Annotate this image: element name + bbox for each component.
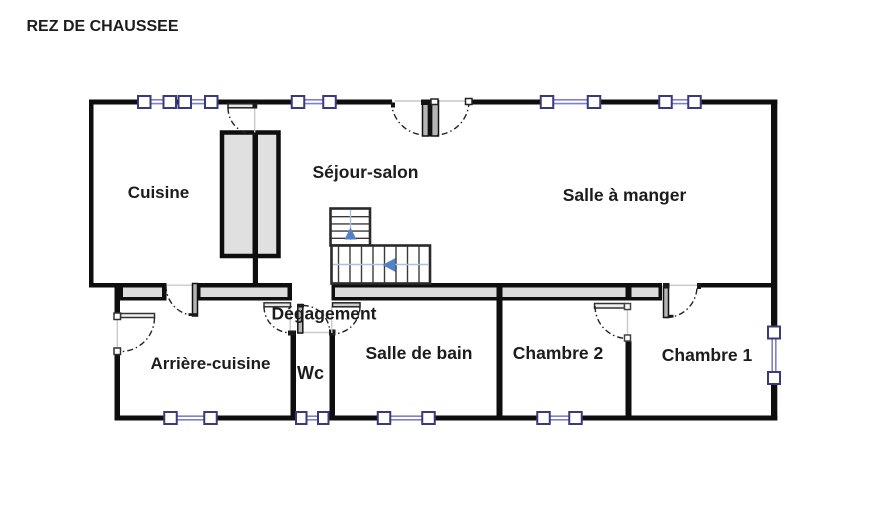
svg-text:Arrière-cuisine: Arrière-cuisine	[151, 354, 271, 373]
svg-text:Wc: Wc	[297, 363, 324, 383]
svg-text:Chambre 2: Chambre 2	[513, 343, 604, 363]
svg-text:Dégagement: Dégagement	[271, 304, 376, 324]
svg-text:REZ DE CHAUSSEE: REZ DE CHAUSSEE	[27, 18, 179, 35]
svg-text:Séjour-salon: Séjour-salon	[313, 162, 419, 182]
svg-text:Cuisine: Cuisine	[128, 183, 189, 202]
svg-text:Salle à manger: Salle à manger	[563, 185, 687, 205]
svg-text:Chambre 1: Chambre 1	[662, 345, 753, 365]
svg-text:Salle de bain: Salle de bain	[366, 343, 473, 363]
